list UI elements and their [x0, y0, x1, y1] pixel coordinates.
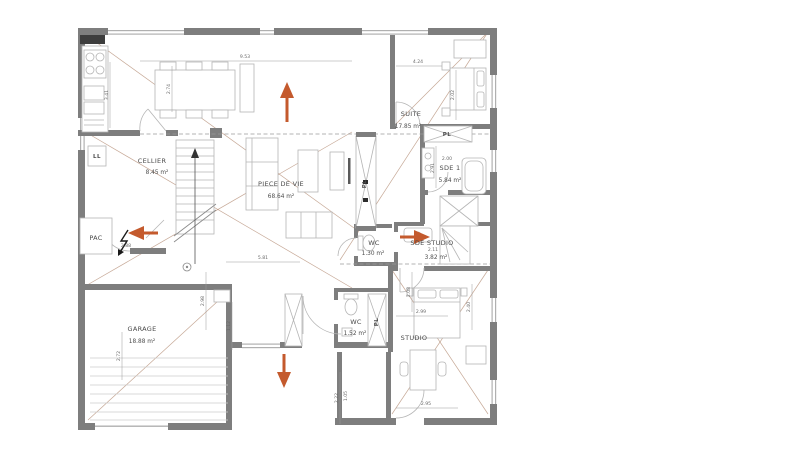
- dim-label: 2.91: [430, 163, 436, 173]
- floor-plan-page: CELLIER 8.45 m² PIECE DE VIE 68.64 m² SU…: [0, 0, 800, 453]
- dim-label: 2.22: [334, 393, 340, 403]
- room-label-studio: STUDIO: [401, 334, 428, 342]
- room-area-wc: 1.30 m²: [362, 250, 385, 257]
- studio-cabinet: [466, 346, 486, 364]
- room-label-cellier: CELLIER: [138, 157, 167, 165]
- room-label-pac: PAC: [89, 234, 102, 242]
- suite-wardrobe: [454, 40, 486, 58]
- room-area-cellier: 8.45 m²: [146, 169, 169, 176]
- floor-plan-drawing: CELLIER 8.45 m² PIECE DE VIE 68.64 m² SU…: [0, 0, 800, 453]
- dim-label: 2.88: [121, 243, 131, 249]
- dim-label: 2.00: [442, 156, 452, 162]
- closet-label-3: PL: [374, 318, 380, 327]
- staircase: [174, 140, 216, 271]
- kitchen-hood: [80, 35, 105, 44]
- wc-toilet: [358, 236, 363, 250]
- room-area-sde-studio: 3.82 m²: [425, 254, 448, 261]
- dim-label: 4.24: [413, 59, 423, 65]
- room-area-garage: 18.88 m²: [129, 338, 155, 345]
- living-room-furniture: [246, 138, 351, 238]
- dim-label: 1.12: [226, 321, 232, 331]
- dim-label: 2.08: [406, 287, 412, 297]
- wc2-toilet: [344, 294, 358, 299]
- dim-label: 1.05: [343, 391, 349, 401]
- closet-label-1: PL: [443, 132, 452, 138]
- room-label-garage: GARAGE: [127, 325, 156, 333]
- room-label-suite: SUITE: [401, 110, 421, 118]
- garage-unit: [214, 290, 230, 302]
- room-label-sde1: SDE 1: [440, 164, 461, 172]
- dim-label: 2.99: [416, 309, 426, 315]
- dim-label: 2.11: [428, 247, 438, 253]
- tv-screen: [348, 158, 351, 184]
- dim-label: 2.98: [200, 296, 206, 306]
- room-label-sde-studio: SDE STUDIO: [410, 239, 453, 247]
- room-area-sde1: 5.84 m²: [439, 177, 462, 184]
- dim-label: 3.41: [104, 90, 110, 100]
- room-label-wc2: WC: [350, 318, 362, 326]
- room-area-wc2: 1.52 m²: [344, 330, 367, 337]
- closet-label-2: PL: [362, 180, 368, 189]
- room-area-piece-de-vie: 68.64 m²: [268, 193, 294, 200]
- dim-label: 2.40: [466, 302, 472, 312]
- kitchen-island: [240, 64, 254, 112]
- room-label-piece-de-vie: PIECE DE VIE: [258, 180, 304, 188]
- washer-label: LL: [93, 154, 101, 160]
- dim-label: 2.95: [421, 401, 431, 407]
- dim-label: 5.81: [258, 255, 268, 261]
- dim-label: 2.72: [116, 351, 122, 361]
- room-label-wc: WC: [368, 239, 380, 247]
- arrow-left-icon: [128, 226, 158, 240]
- kitchen-fixtures: [80, 35, 108, 132]
- dim-label: 2.74: [166, 84, 172, 94]
- dim-label: 9.53: [240, 54, 250, 60]
- dim-label: 2.02: [450, 90, 456, 100]
- tv-unit: [330, 152, 344, 190]
- sofa-2: [286, 212, 332, 238]
- kitchen-sink: [84, 86, 104, 100]
- arrow-up-icon: [280, 82, 294, 122]
- arrow-down-icon: [277, 354, 291, 388]
- room-area-suite: 17.85 m²: [395, 123, 421, 130]
- studio-desk: [410, 350, 436, 390]
- suite-furniture: [442, 40, 486, 116]
